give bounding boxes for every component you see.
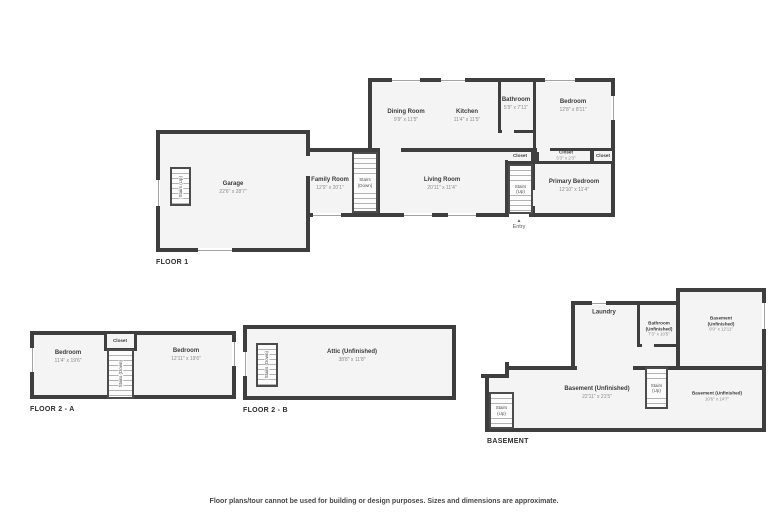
- window-marker: [762, 303, 766, 329]
- floor1-title: FLOOR 1: [156, 259, 188, 266]
- door-opening: [642, 344, 654, 347]
- window-marker: [448, 213, 476, 217]
- floor1-top-band: [368, 78, 615, 152]
- floor-plan-canvas: Stairs (Down) Stairs (Up) Stairs (Up) Ga…: [0, 0, 768, 512]
- basement-laundry-band: [571, 301, 680, 370]
- door-opening: [502, 130, 514, 133]
- floor2b-stairs-down-box: Stairs (Down): [256, 343, 278, 387]
- door-opening: [537, 148, 550, 152]
- wall: [533, 78, 536, 152]
- basement-title: BASEMENT: [487, 438, 529, 445]
- stairs-down-box: Stairs (Down): [352, 152, 378, 213]
- floor2a-title: FLOOR 2 - A: [30, 406, 75, 413]
- disclaimer-text: Floor plans/tour cannot be used for buil…: [0, 498, 768, 505]
- stairs-label: Stairs (Up): [178, 175, 183, 199]
- floor2a-stairs-down-box: Stairs (Down): [107, 349, 134, 399]
- window-marker: [198, 248, 232, 252]
- wall: [498, 78, 501, 133]
- window-marker: [243, 352, 247, 376]
- window-marker: [592, 301, 606, 305]
- floor2b-title: FLOOR 2 - B: [243, 407, 288, 414]
- window-marker: [404, 213, 432, 217]
- stairs-label: Stairs (Up): [510, 183, 531, 196]
- door-opening: [306, 156, 310, 176]
- garage-stairs-up-box: Stairs (Up): [170, 167, 191, 206]
- stairs-label: Stairs (Up): [491, 404, 512, 417]
- entry-marker: ▲ Entry: [513, 219, 526, 231]
- window-marker: [313, 213, 341, 217]
- window-marker: [30, 348, 34, 372]
- window-marker: [441, 78, 465, 82]
- window-marker: [545, 78, 575, 82]
- basement-ne-room: [676, 288, 766, 370]
- basement-main-band: [485, 366, 766, 432]
- closet-right: [591, 148, 615, 164]
- stairs-label: Stairs (Down): [264, 350, 269, 379]
- basement-stairs-mid-box: Stairs (Up): [645, 367, 668, 409]
- stairs-label: Stairs (Down): [354, 176, 376, 189]
- entry-label: Entry: [513, 224, 526, 231]
- wall: [531, 148, 535, 162]
- stairs-label: Stairs (Down): [118, 359, 123, 388]
- window-marker: [611, 96, 615, 120]
- door-opening: [505, 152, 508, 160]
- window-marker: [156, 180, 160, 206]
- basement-step-notch: [481, 362, 509, 378]
- window-marker: [392, 78, 420, 82]
- window-marker: [232, 342, 236, 366]
- laundry-opening: [577, 363, 633, 374]
- stairs-label: Stairs (Up): [647, 382, 666, 395]
- floor2a-closet: [104, 331, 137, 351]
- wall: [637, 301, 640, 347]
- door-opening: [380, 148, 401, 152]
- stairs-up-box: Stairs (Up): [508, 164, 533, 214]
- basement-stairs-left-box: Stairs (Up): [489, 392, 514, 429]
- room-primary-bedroom: [531, 160, 615, 217]
